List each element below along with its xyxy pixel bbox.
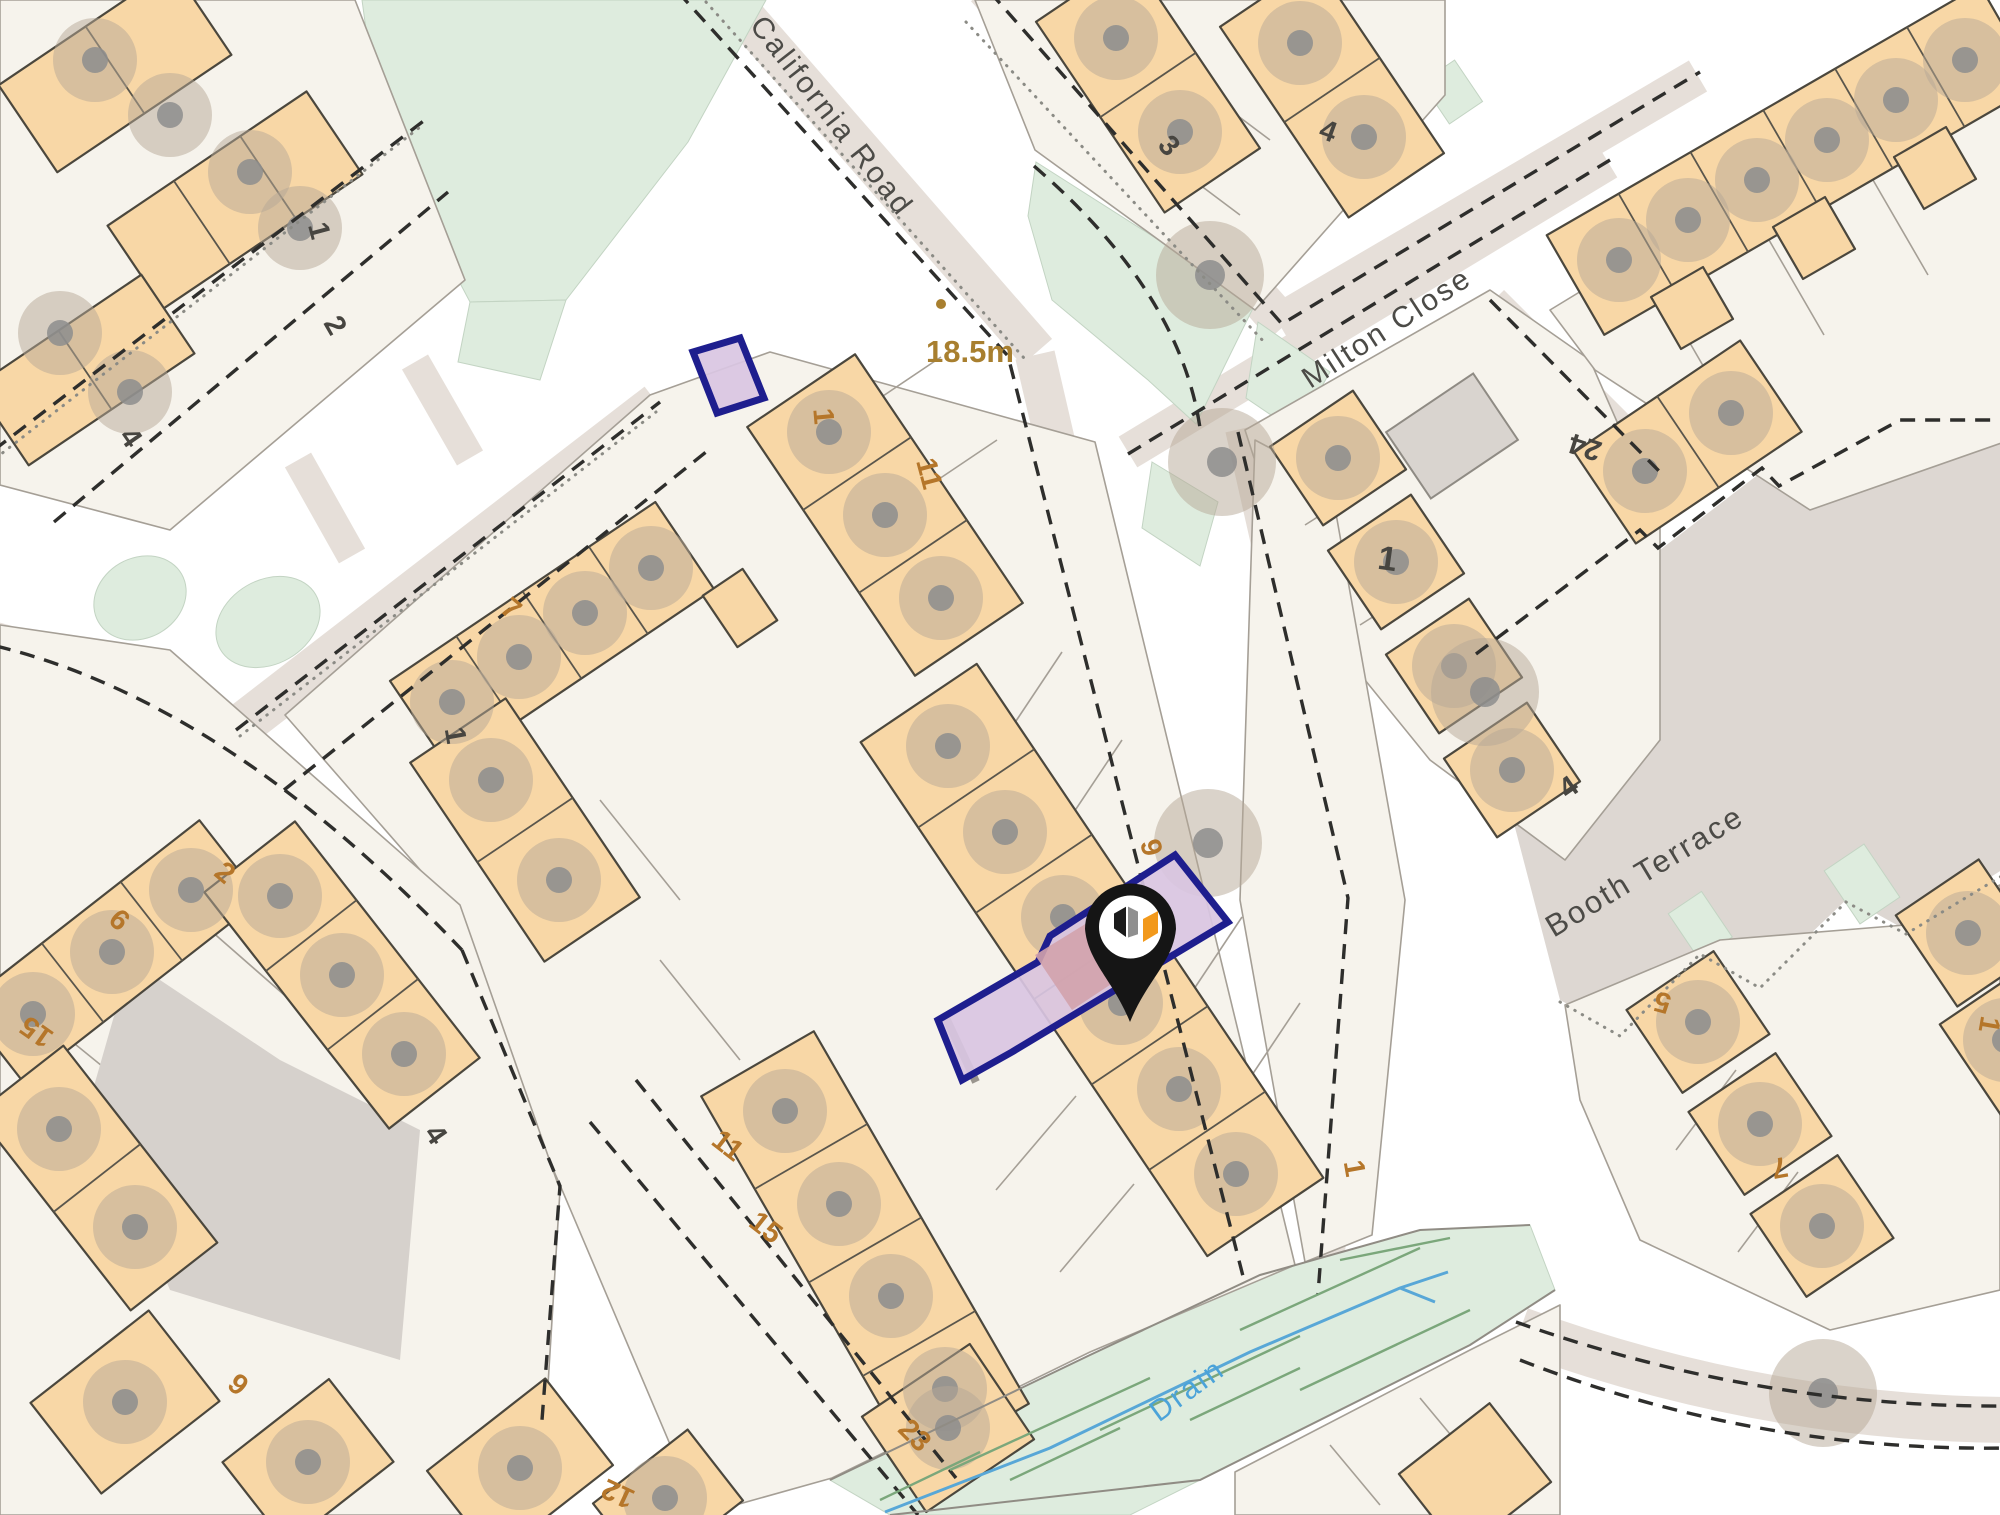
tree-icon — [1168, 408, 1276, 516]
map-canvas[interactable]: 18.5m California RoadMilton CloseBooth T… — [0, 0, 2000, 1515]
tree-icon — [300, 933, 384, 1017]
tree-icon — [1603, 429, 1687, 513]
tree-icon — [906, 704, 990, 788]
tree-icon — [797, 1162, 881, 1246]
tree-icon — [787, 390, 871, 474]
tree-icon — [93, 1185, 177, 1269]
road-band — [1520, 1330, 2000, 1420]
tree-icon — [899, 556, 983, 640]
road-band — [298, 460, 352, 556]
tree-icon — [17, 1087, 101, 1171]
tree-icon — [1780, 1184, 1864, 1268]
tree-icon — [1296, 416, 1380, 500]
tree-icon — [1194, 1132, 1278, 1216]
measurement-label: 18.5m — [926, 334, 1014, 369]
tree-icon — [1431, 638, 1539, 746]
tree-icon — [128, 73, 212, 157]
tree-icon — [743, 1069, 827, 1153]
tree-icon — [517, 838, 601, 922]
tree-icon — [362, 1012, 446, 1096]
tree-icon — [1718, 1082, 1802, 1166]
green-area — [458, 300, 566, 380]
tree-icon — [1156, 221, 1264, 329]
road-band — [415, 362, 470, 458]
tree-icon — [266, 1420, 350, 1504]
tree-icon — [609, 526, 693, 610]
tree-icon — [1258, 1, 1342, 85]
measurement-dot — [936, 299, 946, 309]
tree-icon — [849, 1254, 933, 1338]
tree-icon — [449, 738, 533, 822]
tree-icon — [53, 18, 137, 102]
map-viewport[interactable]: 18.5m California RoadMilton CloseBooth T… — [0, 0, 2000, 1515]
house-number-label: 1 — [806, 407, 839, 426]
street-label-california-road: California Road — [743, 10, 919, 223]
tree-icon — [83, 1360, 167, 1444]
tree-icon — [1689, 371, 1773, 455]
tree-icon — [1138, 90, 1222, 174]
tree-icon — [478, 1426, 562, 1510]
tree-icon — [238, 854, 322, 938]
tree-icon — [1137, 1047, 1221, 1131]
tree-icon — [963, 790, 1047, 874]
tree-icon — [843, 473, 927, 557]
tree-icon — [88, 350, 172, 434]
tree-icon — [18, 291, 102, 375]
